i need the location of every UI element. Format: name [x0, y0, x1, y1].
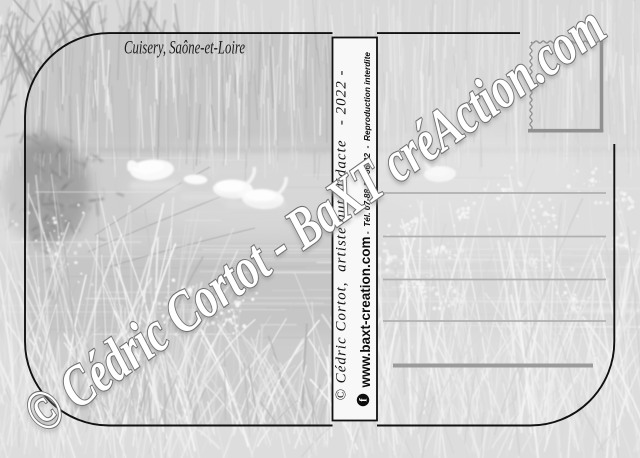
svg-text:f: f	[358, 398, 369, 402]
svg-text:Cuisery, Saône-et-Loire: Cuisery, Saône-et-Loire	[124, 39, 245, 59]
